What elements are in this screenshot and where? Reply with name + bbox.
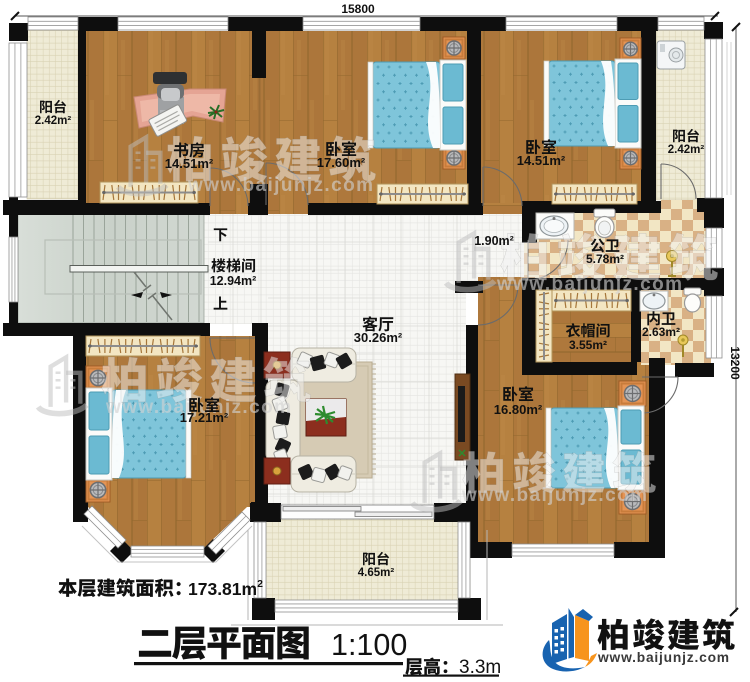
svg-text:www.baijunjz.com: www.baijunjz.com xyxy=(187,175,374,196)
svg-text:www.baijunjz.com: www.baijunjz.com xyxy=(597,650,730,665)
svg-text:15800: 15800 xyxy=(341,2,375,16)
svg-text:173.81m2: 173.81m2 xyxy=(188,578,263,599)
svg-text:5.78m²: 5.78m² xyxy=(586,252,624,266)
svg-text:2.42m²: 2.42m² xyxy=(668,144,705,156)
svg-text:2.42m²: 2.42m² xyxy=(35,115,72,127)
svg-text:16.80m²: 16.80m² xyxy=(494,402,543,417)
svg-text:17.60m²: 17.60m² xyxy=(317,155,366,170)
svg-text:2.63m²: 2.63m² xyxy=(642,325,680,339)
svg-text:www.baijunjz.com: www.baijunjz.com xyxy=(461,485,648,506)
svg-text:14.51m²: 14.51m² xyxy=(517,153,566,168)
svg-text:1:100: 1:100 xyxy=(331,628,407,662)
svg-text:30.26m²: 30.26m² xyxy=(354,330,403,345)
svg-text:12.94m²: 12.94m² xyxy=(210,274,257,288)
svg-text:3.55m²: 3.55m² xyxy=(569,338,607,352)
svg-text:13200: 13200 xyxy=(728,346,742,380)
svg-text:14.51m²: 14.51m² xyxy=(165,156,214,171)
svg-text:4.65m²: 4.65m² xyxy=(358,567,395,579)
svg-text:17.21m²: 17.21m² xyxy=(180,410,229,425)
svg-text:1.90m²: 1.90m² xyxy=(474,234,514,248)
svg-text:www.baijunjz.com: www.baijunjz.com xyxy=(496,274,683,295)
